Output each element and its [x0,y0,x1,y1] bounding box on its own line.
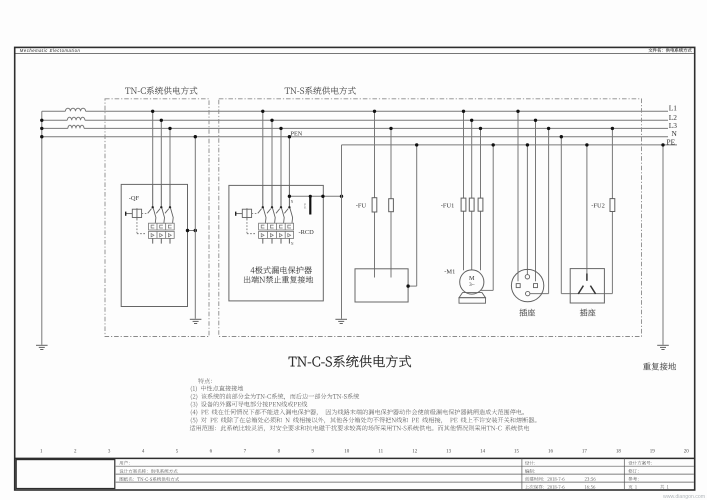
svg-text:PE: PE [667,137,676,146]
svg-text:11: 11 [378,450,383,455]
svg-text:10: 10 [344,450,350,455]
svg-text:12: 12 [412,450,418,455]
svg-text:M: M [469,275,475,282]
svg-text:19: 19 [650,450,656,455]
svg-text:-RCD: -RCD [299,229,315,236]
svg-text:14: 14 [480,450,486,455]
svg-text:3~: 3~ [469,282,475,288]
svg-text:15: 15 [514,450,520,455]
svg-text:20: 20 [684,450,690,455]
svg-text:16: 16 [548,450,554,455]
svg-text:N: N [291,242,294,246]
svg-text:PEN: PEN [291,131,303,138]
svg-text:17: 17 [582,450,588,455]
svg-text:E: E [304,206,306,210]
svg-text:-FU: -FU [356,202,367,209]
svg-text:18: 18 [616,450,622,455]
svg-text:Mechematic Electomation: Mechematic Electomation [20,48,81,53]
svg-text:-FU2: -FU2 [591,202,605,209]
svg-text:13: 13 [446,450,452,455]
svg-text:-FU1: -FU1 [441,202,455,209]
svg-text:L1: L1 [669,104,678,113]
svg-text:-QF: -QF [129,195,140,202]
svg-text:N: N [291,200,294,204]
svg-text:www.diangon.com: www.diangon.com [663,494,705,500]
svg-text:-M1: -M1 [444,269,455,276]
